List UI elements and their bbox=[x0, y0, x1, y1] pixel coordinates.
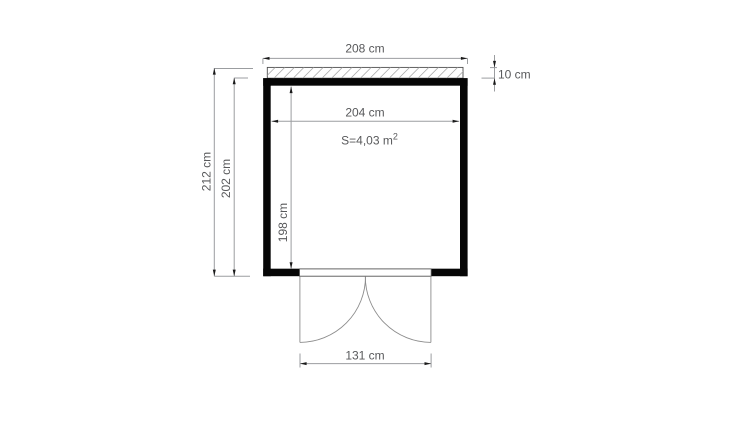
svg-text:202 cm: 202 cm bbox=[219, 159, 233, 198]
svg-text:208 cm: 208 cm bbox=[345, 42, 384, 56]
svg-text:10 cm: 10 cm bbox=[498, 67, 531, 81]
svg-text:204 cm: 204 cm bbox=[345, 106, 384, 120]
svg-text:131 cm: 131 cm bbox=[345, 349, 384, 363]
svg-text:198 cm: 198 cm bbox=[276, 203, 290, 242]
svg-text:212 cm: 212 cm bbox=[200, 152, 214, 191]
svg-text:S=4,03 m2: S=4,03 m2 bbox=[341, 132, 398, 148]
